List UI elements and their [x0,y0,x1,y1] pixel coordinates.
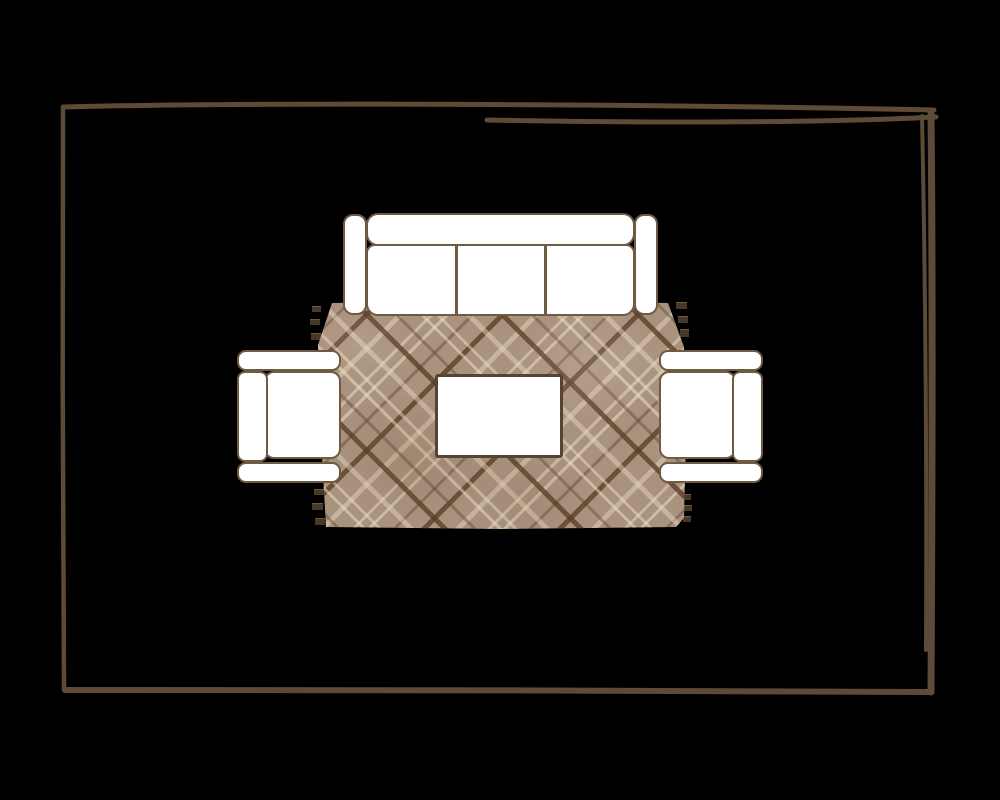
sofa[interactable] [343,213,658,317]
sofa-seat-divider [455,244,458,316]
floor-plan-canvas [0,0,1000,800]
armchair-back [237,371,268,462]
armchair-armrest-top [659,350,763,371]
rug-fringe-tuft [312,503,323,510]
rug-fringe-tuft [676,302,687,309]
sofa-armrest-right [634,214,658,315]
rug-fringe-tuft [683,516,691,522]
sofa-seat-divider [544,244,547,316]
armchair-right[interactable] [659,350,763,483]
room-wall-top-overstroke [487,117,936,122]
room-wall-left [63,109,64,690]
armchair-back [732,371,763,462]
rug-fringe-tuft [310,319,320,325]
rug-fringe-tuft [311,333,321,340]
room-wall-right [931,111,932,692]
rug-fringe-tuft [312,306,321,312]
rug-fringe-tuft [680,329,689,337]
rug-fringe-tuft [678,316,688,323]
armchair-armrest-bottom [237,462,341,483]
room-wall-top [63,104,934,110]
armchair-armrest-bottom [659,462,763,483]
sofa-back-cushion [366,213,635,246]
room-wall-bottom [65,689,929,692]
sofa-armrest-left [343,214,367,315]
armchair-left[interactable] [237,350,341,483]
armchair-armrest-top [237,350,341,371]
sofa-seat-cushions [366,244,635,316]
armchair-seat [659,371,736,459]
coffee-table[interactable] [435,374,563,458]
armchair-seat [264,371,341,459]
rug-fringe-tuft [315,518,325,525]
rug-fringe-tuft [684,505,692,511]
room-wall-right-overstroke [922,116,926,650]
rug-fringe-tuft [314,489,324,495]
